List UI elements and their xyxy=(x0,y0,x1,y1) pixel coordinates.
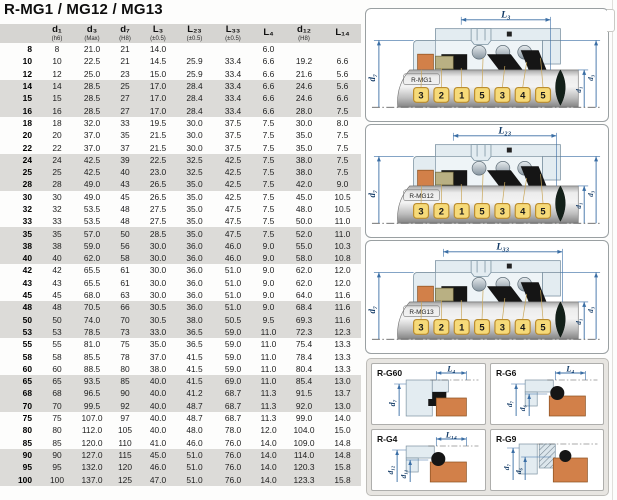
table-cell: 7.5 xyxy=(253,229,284,239)
table-row: 434365.56130.036.051.09.062.012.0 xyxy=(0,277,361,289)
table-cell: 33 xyxy=(110,118,140,128)
column-header: L₁₄ xyxy=(324,24,361,43)
part-number: 3 xyxy=(500,206,505,216)
table-cell: 5.6 xyxy=(324,81,361,91)
table-cell: 78 xyxy=(110,352,140,362)
table-cell: 43 xyxy=(0,278,40,288)
table-cell: 37 xyxy=(110,143,140,153)
part-number: 5 xyxy=(540,322,545,332)
table-cell: 6.6 xyxy=(324,93,361,103)
dimension-label: L₄ xyxy=(446,364,455,373)
table-cell: 28.4 xyxy=(176,81,213,91)
table-cell: 30 xyxy=(0,192,40,202)
table-cell: 36.5 xyxy=(176,327,213,337)
table-cell: 25 xyxy=(0,167,40,177)
table-cell: 41.5 xyxy=(176,352,213,362)
table-cell: 14 xyxy=(40,81,74,91)
table-cell: 58 xyxy=(0,352,40,362)
table-cell: 15.0 xyxy=(324,425,361,435)
column-tolerance: (±0.5) xyxy=(150,36,166,42)
table-cell: 78.4 xyxy=(284,352,324,362)
table-cell: 100 xyxy=(0,475,40,485)
table-cell: 28.4 xyxy=(176,93,213,103)
table-cell: 36.0 xyxy=(176,290,213,300)
table-cell: 80.4 xyxy=(284,364,324,374)
table-cell: 7.5 xyxy=(253,192,284,202)
part-number: 5 xyxy=(479,206,484,216)
table-cell: 80 xyxy=(110,364,140,374)
table-cell: 11.0 xyxy=(253,364,284,374)
diagram-model-label: R-MG1 xyxy=(411,77,432,84)
table-cell: 99.0 xyxy=(284,413,324,423)
dimension-label: d₃ xyxy=(586,74,595,81)
table-cell: 68.7 xyxy=(213,413,253,423)
table-row: 353557.05028.535.047.57.552.011.0 xyxy=(0,227,361,239)
drive-pin xyxy=(507,148,512,153)
table-body: 8821.02114.06.0101022.52114.525.933.46.6… xyxy=(0,43,361,486)
page-edge-tab xyxy=(607,9,615,32)
table-cell: 73 xyxy=(110,327,140,337)
table-cell: 23 xyxy=(110,69,140,79)
table-cell: 24.6 xyxy=(284,93,324,103)
table-cell: 107.0 xyxy=(74,413,110,423)
column-label: L₃₃ xyxy=(226,25,241,35)
table-cell: 105 xyxy=(110,425,140,435)
table-cell: 30.0 xyxy=(176,130,213,140)
table-cell: 58 xyxy=(110,253,140,263)
dimension-label: d₇ xyxy=(367,190,377,198)
table-cell: 85.5 xyxy=(74,352,110,362)
column-header: d₇(H8) xyxy=(110,24,140,43)
table-cell: 45.0 xyxy=(284,192,324,202)
table-cell: 26.5 xyxy=(140,179,176,189)
table-cell: 17.0 xyxy=(140,93,176,103)
table-cell: 10 xyxy=(40,56,74,66)
table-cell: 42 xyxy=(40,265,74,275)
o-ring xyxy=(559,450,571,462)
dimension-label: d₃ xyxy=(586,306,595,313)
table-cell: 9.0 xyxy=(253,290,284,300)
table-cell: 75 xyxy=(110,339,140,349)
table-cell: 68.7 xyxy=(213,401,253,411)
table-cell: 11.0 xyxy=(253,339,284,349)
table-row: 383859.05630.036.046.09.055.010.3 xyxy=(0,240,361,252)
table-cell: 15 xyxy=(0,93,40,103)
part-number: 3 xyxy=(418,206,423,216)
table-cell: 65.5 xyxy=(74,265,110,275)
table-cell: 81.0 xyxy=(74,339,110,349)
column-tolerance: (Max) xyxy=(84,36,99,42)
table-cell: 33 xyxy=(40,216,74,226)
table-cell: 14.0 xyxy=(253,462,284,472)
table-cell: 40.0 xyxy=(140,425,176,435)
table-cell: 15.0 xyxy=(140,69,176,79)
table-cell: 69.3 xyxy=(284,315,324,325)
table-cell: 38.0 xyxy=(284,155,324,165)
table-cell: 60 xyxy=(0,364,40,374)
table-cell: 5.6 xyxy=(324,69,361,79)
table-cell: 10.8 xyxy=(324,253,361,263)
table-cell: 23.0 xyxy=(140,167,176,177)
table-cell: 37.5 xyxy=(213,118,253,128)
table-cell: 90 xyxy=(0,450,40,460)
table-cell: 45 xyxy=(0,290,40,300)
column-header: d₁₂(H8) xyxy=(284,24,324,43)
table-cell: 7.5 xyxy=(253,155,284,165)
table-cell: 40 xyxy=(0,253,40,263)
table-cell: 46.0 xyxy=(213,253,253,263)
dimension-label: d₆ xyxy=(514,467,523,474)
table-cell: 80 xyxy=(40,425,74,435)
table-cell: 14.0 xyxy=(253,438,284,448)
face-ring xyxy=(435,172,453,185)
table-cell: 11.0 xyxy=(253,352,284,362)
section-panel-r-g4: R-G4 L₁₄ d₁₂ d₁₁ xyxy=(371,429,486,491)
dimension-label: L₁₄ xyxy=(445,430,457,439)
table-cell: 28.0 xyxy=(284,106,324,116)
table-cell: 51.0 xyxy=(213,290,253,300)
table-cell: 37.5 xyxy=(213,130,253,140)
table-cell: 9.0 xyxy=(253,241,284,251)
diagram-model-label: R-MG13 xyxy=(409,309,434,316)
table-cell: 114.0 xyxy=(284,450,324,460)
part-number: 1 xyxy=(459,206,464,216)
table-cell: 72.3 xyxy=(284,327,324,337)
part-number: 1 xyxy=(459,322,464,332)
table-cell: 13.0 xyxy=(324,401,361,411)
table-cell: 39 xyxy=(110,155,140,165)
table-cell: 32 xyxy=(40,204,74,214)
table-cell: 40.0 xyxy=(140,401,176,411)
table-cell: 132.0 xyxy=(74,462,110,472)
o-ring xyxy=(431,452,445,466)
table-cell: 38 xyxy=(0,241,40,251)
table-cell: 76.0 xyxy=(213,475,253,485)
table-row: 303049.04526.535.042.57.545.010.5 xyxy=(0,191,361,203)
table-cell: 43 xyxy=(110,179,140,189)
table-cell: 30.0 xyxy=(140,290,176,300)
table-cell: 19.5 xyxy=(140,118,176,128)
table-cell: 15.8 xyxy=(324,462,361,472)
table-row: 242442.53922.532.542.57.538.07.5 xyxy=(0,154,361,166)
table-cell: 28.4 xyxy=(176,106,213,116)
table-cell: 53.5 xyxy=(74,216,110,226)
table-cell: 33.4 xyxy=(213,56,253,66)
table-cell: 28.5 xyxy=(74,106,110,116)
table-cell: 11.3 xyxy=(253,388,284,398)
table-cell: 7.5 xyxy=(324,167,361,177)
seat-ring xyxy=(418,286,434,302)
table-cell: 35.0 xyxy=(284,130,324,140)
table-cell: 52.0 xyxy=(284,229,324,239)
dimension-label: d₃ xyxy=(586,190,595,197)
table-cell: 92 xyxy=(110,401,140,411)
diagram-model-label: R-MG12 xyxy=(409,193,434,200)
part-number: 3 xyxy=(500,90,505,100)
table-cell: 49.0 xyxy=(74,179,110,189)
table-cell: 11.3 xyxy=(253,413,284,423)
table-cell: 36.0 xyxy=(176,253,213,263)
table-row: 404062.05830.036.046.09.058.010.8 xyxy=(0,252,361,264)
table-cell: 99.5 xyxy=(74,401,110,411)
table-cell: 37.0 xyxy=(74,130,110,140)
part-number: 5 xyxy=(540,206,545,216)
table-cell: 8.0 xyxy=(324,118,361,128)
table-cell: 46.0 xyxy=(176,438,213,448)
table-cell: 7.5 xyxy=(324,130,361,140)
table-cell: 35.0 xyxy=(284,143,324,153)
column-tolerance: (H8) xyxy=(119,36,131,42)
table-cell: 21.6 xyxy=(284,69,324,79)
table-cell: 16 xyxy=(40,106,74,116)
table-cell: 10.5 xyxy=(324,204,361,214)
table-cell: 14 xyxy=(0,81,40,91)
table-cell: 28.5 xyxy=(140,229,176,239)
diagram-r-mg13: R-MG13 3 2 1 5 3 4 5 L₃₃d₇d₁d₃ xyxy=(365,240,609,354)
table-cell: 6.6 xyxy=(253,69,284,79)
table-cell: 40 xyxy=(40,253,74,263)
table-row: 484870.56630.536.051.09.068.411.6 xyxy=(0,301,361,313)
table-cell: 14.0 xyxy=(140,44,176,54)
table-cell: 11.6 xyxy=(324,290,361,300)
table-cell: 28.5 xyxy=(74,81,110,91)
section-panel-r-g6: R-G6 L₄ d₇ d₆ xyxy=(490,363,605,425)
table-cell: 78.5 xyxy=(74,327,110,337)
table-cell: 35 xyxy=(110,130,140,140)
table-cell: 50.5 xyxy=(213,315,253,325)
table-cell: 93.5 xyxy=(74,376,110,386)
table-row: 333353.54827.535.047.57.550.011.0 xyxy=(0,215,361,227)
table-cell: 50 xyxy=(110,229,140,239)
dimension-label: d₇ xyxy=(367,306,377,314)
table-cell: 6.6 xyxy=(253,106,284,116)
table-cell: 75 xyxy=(40,413,74,423)
table-cell: 32.0 xyxy=(74,118,110,128)
column-header: L₃₃(±0.5) xyxy=(213,24,253,43)
table-cell: 27 xyxy=(110,93,140,103)
table-row: 101022.52114.525.933.46.619.26.6 xyxy=(0,55,361,67)
table-row: 252542.54023.032.542.57.538.07.5 xyxy=(0,166,361,178)
gland-body xyxy=(406,446,434,458)
table-cell: 42.5 xyxy=(74,155,110,165)
table-cell: 24.6 xyxy=(284,81,324,91)
table-cell: 35.0 xyxy=(140,339,176,349)
table-cell: 15.8 xyxy=(324,475,361,485)
table-cell: 13.3 xyxy=(324,339,361,349)
table-cell: 125 xyxy=(110,475,140,485)
table-cell: 53 xyxy=(0,327,40,337)
table-cell: 33 xyxy=(0,216,40,226)
table-cell: 62.0 xyxy=(284,278,324,288)
face-ring xyxy=(435,288,453,301)
table-cell: 30.5 xyxy=(140,315,176,325)
table-cell: 95 xyxy=(0,462,40,472)
table-cell: 62.0 xyxy=(74,253,110,263)
table-cell: 42.5 xyxy=(213,167,253,177)
table-cell: 33.4 xyxy=(213,93,253,103)
table-row: 323253.54827.535.047.57.548.010.5 xyxy=(0,203,361,215)
part-number: 3 xyxy=(500,322,505,332)
table-cell: 85 xyxy=(0,438,40,448)
table-cell: 7.5 xyxy=(253,179,284,189)
table-cell: 55 xyxy=(40,339,74,349)
table-cell: 65 xyxy=(40,376,74,386)
part-number: 5 xyxy=(540,90,545,100)
table-cell: 12.3 xyxy=(324,327,361,337)
table-cell: 24 xyxy=(40,155,74,165)
table-cell: 48.7 xyxy=(176,413,213,423)
table-cell: 12 xyxy=(40,69,74,79)
column-label: L₂₃ xyxy=(187,25,201,35)
diagram-r-mg12: R-MG12 3 2 1 5 3 4 5 L₂₃d₇d₁d₃ xyxy=(365,124,609,238)
table-cell: 30 xyxy=(40,192,74,202)
table-cell: 76.0 xyxy=(213,462,253,472)
table-cell: 96.5 xyxy=(74,388,110,398)
table-cell: 55 xyxy=(0,339,40,349)
section-panel-r-g60: R-G60 L₄ d₇ xyxy=(371,363,486,425)
table-cell: 41.5 xyxy=(176,364,213,374)
table-cell: 9.5 xyxy=(253,315,284,325)
table-cell: 30.0 xyxy=(176,118,213,128)
table-cell: 19.2 xyxy=(284,56,324,66)
table-cell: 12.0 xyxy=(324,278,361,288)
table-cell: 7.5 xyxy=(253,216,284,226)
section-label: R-G4 xyxy=(377,434,398,444)
drive-pin xyxy=(507,264,512,269)
table-row: 181832.03319.530.037.57.530.08.0 xyxy=(0,117,361,129)
table-cell: 11.0 xyxy=(324,229,361,239)
table-cell: 48 xyxy=(110,204,140,214)
table-cell: 25.9 xyxy=(176,56,213,66)
table-cell: 92.0 xyxy=(284,401,324,411)
table-cell: 33.4 xyxy=(213,69,253,79)
table-cell: 127.0 xyxy=(74,450,110,460)
table-row: 585885.57837.041.559.011.078.413.3 xyxy=(0,350,361,362)
table-cell: 20 xyxy=(40,130,74,140)
table-cell: 42.5 xyxy=(213,192,253,202)
part-number: 2 xyxy=(439,322,444,332)
table-cell: 8 xyxy=(40,44,74,54)
table-cell: 6.6 xyxy=(253,56,284,66)
table-cell: 50 xyxy=(40,315,74,325)
table-cell: 14.0 xyxy=(253,450,284,460)
table-cell: 47.0 xyxy=(140,475,176,485)
dimension-label: d₁ xyxy=(574,202,583,208)
table-cell: 69.0 xyxy=(213,376,253,386)
table-cell: 55.0 xyxy=(284,241,324,251)
part-number: 4 xyxy=(520,90,526,100)
table-cell: 7.5 xyxy=(324,155,361,165)
column-tolerance: (h6) xyxy=(52,36,63,42)
section-label: R-G60 xyxy=(377,368,402,378)
table-cell: 6.6 xyxy=(253,93,284,103)
table-cell: 47.5 xyxy=(213,204,253,214)
table-cell: 27.5 xyxy=(140,216,176,226)
table-cell: 137.0 xyxy=(74,475,110,485)
dimension-label: L₄ xyxy=(565,364,574,373)
column-label: d₁₂ xyxy=(297,25,311,35)
table-cell: 15 xyxy=(40,93,74,103)
part-number: 3 xyxy=(418,90,423,100)
table-cell: 28 xyxy=(40,179,74,189)
table-cell: 65 xyxy=(0,376,40,386)
table-cell: 59.0 xyxy=(74,241,110,251)
table-row: 686896.59040.041.268.711.391.513.7 xyxy=(0,387,361,399)
table-cell: 76.0 xyxy=(213,438,253,448)
table-cell: 18 xyxy=(0,118,40,128)
table-cell: 7.5 xyxy=(324,106,361,116)
table-cell: 14.5 xyxy=(140,56,176,66)
table-cell: 100 xyxy=(40,475,74,485)
part-number: 2 xyxy=(439,206,444,216)
table-cell: 21.0 xyxy=(74,44,110,54)
column-tolerance: (±0.5) xyxy=(225,36,241,42)
table-cell: 9.0 xyxy=(253,302,284,312)
table-cell: 11.0 xyxy=(253,327,284,337)
table-cell: 13.7 xyxy=(324,388,361,398)
table-cell: 37.0 xyxy=(140,352,176,362)
page-title: R-MG1 / MG12 / MG13 xyxy=(4,1,163,18)
table-cell: 59.0 xyxy=(213,352,253,362)
table-cell: 49.0 xyxy=(74,192,110,202)
table-cell: 38.0 xyxy=(140,364,176,374)
column-header xyxy=(0,24,40,43)
part-number: 4 xyxy=(520,322,526,332)
column-header: L₄ xyxy=(253,24,284,43)
table-cell: 61 xyxy=(110,265,140,275)
table-cell: 45 xyxy=(40,290,74,300)
table-cell: 42.5 xyxy=(74,167,110,177)
table-cell: 76.0 xyxy=(213,450,253,460)
table-cell: 66 xyxy=(110,302,140,312)
table-cell: 10.5 xyxy=(324,192,361,202)
table-cell: 91.5 xyxy=(284,388,324,398)
table-cell: 85.4 xyxy=(284,376,324,386)
table-cell: 6.6 xyxy=(324,56,361,66)
table-cell: 28 xyxy=(0,179,40,189)
table-cell: 35.0 xyxy=(176,179,213,189)
table-cell: 45 xyxy=(110,192,140,202)
table-cell: 9.0 xyxy=(253,265,284,275)
table-row: 8821.02114.06.0 xyxy=(0,43,361,55)
table-cell: 45.0 xyxy=(140,450,176,460)
table-cell: 25.0 xyxy=(74,69,110,79)
table-cell: 48.0 xyxy=(176,425,213,435)
table-cell: 25 xyxy=(110,81,140,91)
table-row: 282849.04326.535.042.57.542.09.0 xyxy=(0,178,361,190)
table-cell: 50 xyxy=(0,315,40,325)
table-cell: 51.0 xyxy=(213,278,253,288)
gland-section-panels: R-G60 L₄ d₇ R-G6 L₄ d₇ d₆ R-G4 L₁₄ d₁₂ d… xyxy=(366,358,609,496)
table-cell: 7.5 xyxy=(253,130,284,140)
table-cell: 27 xyxy=(110,106,140,116)
table-cell: 12.0 xyxy=(324,265,361,275)
dimension-label: d₆ xyxy=(518,404,527,411)
table-cell: 47.5 xyxy=(213,229,253,239)
dimension-label: d₁₁ xyxy=(399,470,408,479)
table-cell: 85 xyxy=(40,438,74,448)
table-cell: 27.5 xyxy=(140,204,176,214)
dimension-label: d₇ xyxy=(502,463,511,470)
seat-ring xyxy=(418,170,434,186)
dimension-label: L₃₃ xyxy=(495,241,509,252)
drive-pin xyxy=(507,32,512,37)
table-cell: 11.3 xyxy=(253,401,284,411)
table-cell: 70 xyxy=(0,401,40,411)
table-cell: 6.0 xyxy=(253,44,284,54)
table-cell: 57.0 xyxy=(74,229,110,239)
column-label: L₃ xyxy=(153,25,163,35)
